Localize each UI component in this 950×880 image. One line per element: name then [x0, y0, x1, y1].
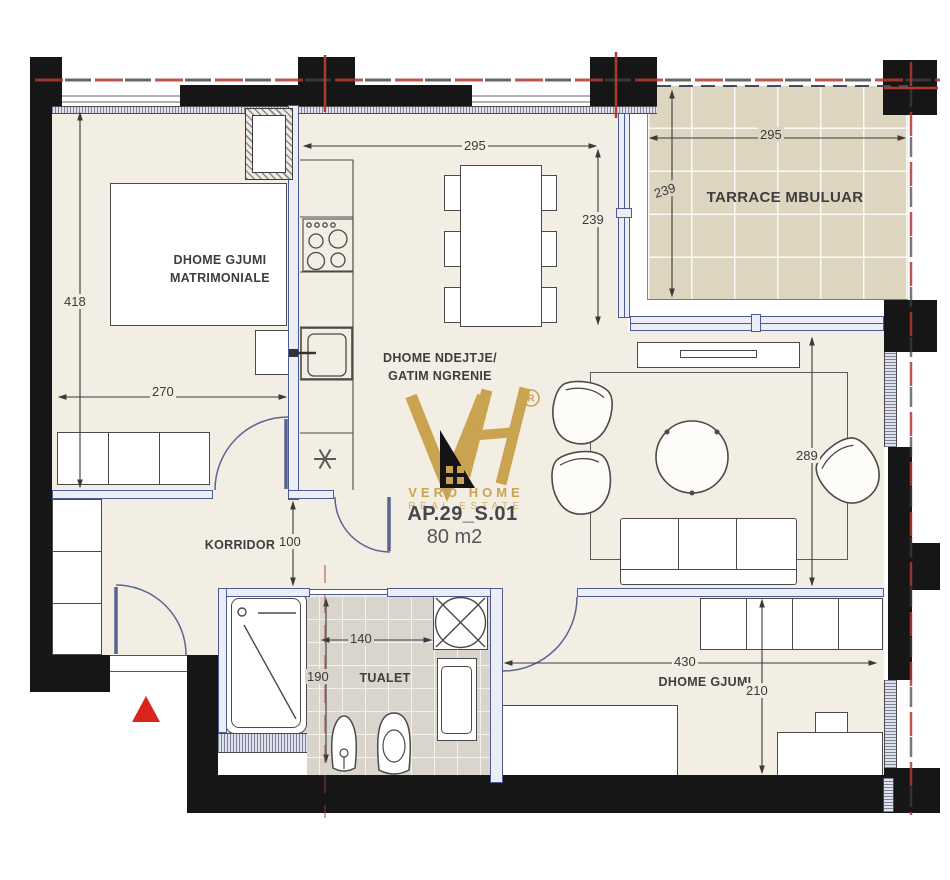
kitchen-sink-icon [289, 328, 352, 379]
plan-linework: R [0, 0, 950, 880]
bidet-icon [332, 716, 357, 771]
dim-terrace-width: 295 [758, 127, 784, 142]
room-label-corridor: KORRIDOR [200, 537, 280, 553]
room-label-terrace: TARRACE MBULUAR [690, 190, 880, 206]
dim-dining-width: 295 [462, 138, 488, 153]
dim-toilet-width: 140 [348, 631, 374, 646]
dim-corridor-width: 100 [277, 534, 303, 549]
dim-master-width: 270 [150, 384, 176, 399]
dim-master-height: 418 [62, 294, 88, 309]
room-label-master-1: DHOME GJUMI [140, 252, 300, 268]
floor-plan: R DHOME GJUMI MATRIMONIALE DHOME NDEJTJE… [0, 0, 950, 880]
coffee-table-icon [656, 421, 728, 496]
toilet-icon [378, 713, 411, 774]
room-label-living-1: DHOME NDEJTJE/ [360, 350, 520, 366]
dim-bedroom-width: 430 [672, 654, 698, 669]
dim-dining-height: 239 [580, 212, 606, 227]
unit-code: AP.29_S.01 [380, 503, 545, 526]
logo-brand-name: VERO HOME [386, 485, 546, 500]
armchair [549, 449, 614, 517]
armchair [808, 430, 892, 515]
washing-machine-icon [436, 598, 486, 648]
dim-bedroom-height: 210 [744, 683, 770, 698]
fridge-snowflake-icon [314, 450, 336, 469]
stove-icon [307, 223, 347, 270]
armchair [548, 377, 616, 448]
unit-area: 80 m2 [372, 526, 537, 549]
room-label-living-2: GATIM NGRENIE [360, 368, 520, 384]
logo-vh-monogram: R [411, 388, 539, 488]
shower-icon [238, 608, 296, 719]
entrance-marker [132, 696, 160, 722]
kitchen-counter [300, 160, 353, 490]
room-label-master-2: MATRIMONIALE [140, 270, 300, 286]
dim-living-height: 289 [794, 448, 820, 463]
registered-icon: R [527, 394, 535, 405]
room-label-toilet: TUALET [355, 670, 415, 686]
dim-toilet-height: 190 [305, 669, 331, 684]
